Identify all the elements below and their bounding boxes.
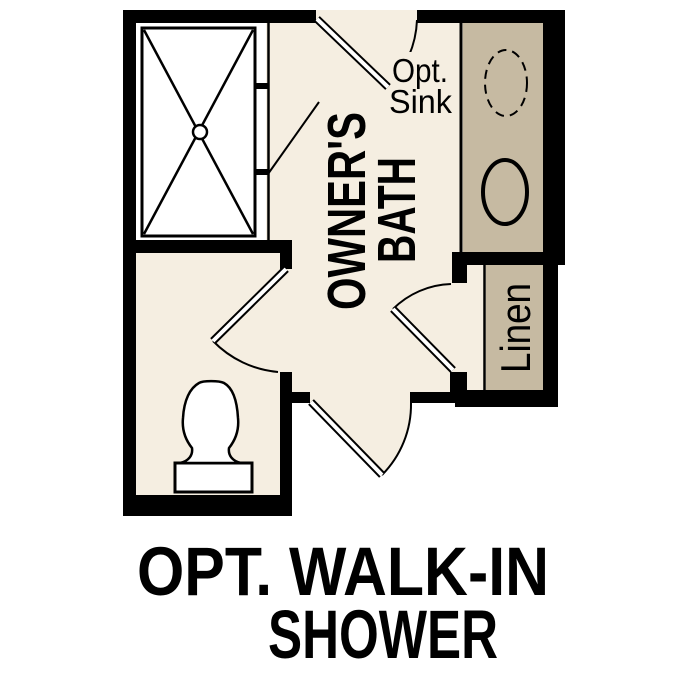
caption-line2: SHOWER — [268, 596, 498, 673]
wall — [280, 372, 292, 516]
sink-note-line2: Sink — [389, 83, 452, 120]
wall — [123, 240, 292, 253]
top-doorway-gap — [316, 10, 417, 23]
wall-stub — [280, 253, 292, 269]
wall — [410, 392, 467, 403]
wall — [417, 10, 565, 23]
linen-label: Linen — [492, 283, 539, 373]
floor-plan: OWNER'S BATH Opt. Sink Linen OPT. WALK-I… — [0, 0, 687, 687]
glass-panel-bracket — [255, 83, 269, 89]
room-label-line2: BATH — [367, 157, 427, 263]
floor-plan-drawing: OWNER'S BATH Opt. Sink Linen OPT. WALK-I… — [0, 0, 687, 687]
wall-stub — [292, 392, 310, 403]
wall — [123, 10, 136, 516]
shower-drain-icon — [193, 125, 207, 139]
toilet-tank — [175, 463, 252, 492]
wall — [543, 10, 565, 265]
wall — [123, 10, 316, 23]
right-doorway-gap — [452, 283, 467, 372]
wall-stub — [452, 252, 467, 283]
wall — [123, 495, 292, 516]
glass-panel-bracket — [255, 169, 269, 175]
wall — [455, 252, 543, 265]
wall — [455, 390, 558, 407]
vanity-counter — [463, 23, 543, 252]
wall — [543, 265, 558, 407]
